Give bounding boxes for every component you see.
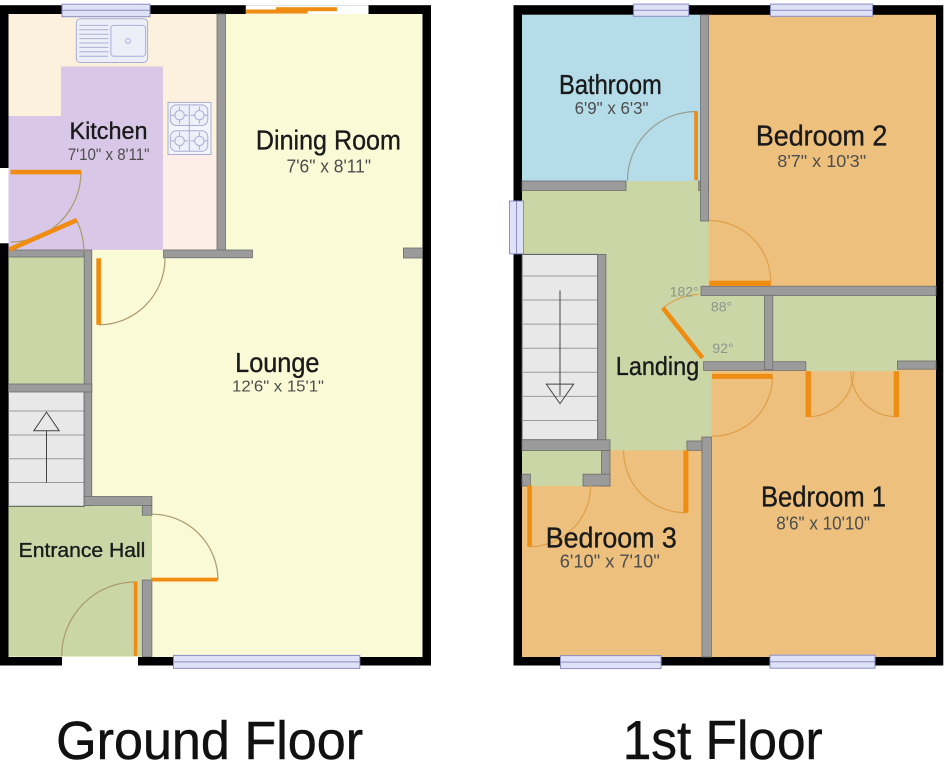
svg-text:Landing: Landing: [616, 351, 699, 381]
svg-text:12'6" x 15'1": 12'6" x 15'1": [232, 378, 324, 395]
svg-text:7'6" x 8'11": 7'6" x 8'11": [287, 155, 372, 176]
svg-text:Bathroom: Bathroom: [559, 69, 662, 100]
svg-text:88°: 88°: [711, 299, 732, 315]
svg-text:Kitchen: Kitchen: [70, 118, 148, 145]
svg-text:Dining Room: Dining Room: [256, 125, 401, 156]
svg-text:Lounge: Lounge: [235, 347, 319, 378]
svg-text:Entrance Hall: Entrance Hall: [19, 539, 146, 562]
svg-text:182°: 182°: [670, 284, 699, 300]
svg-text:Bedroom 2: Bedroom 2: [756, 119, 888, 151]
svg-text:Bedroom 1: Bedroom 1: [761, 481, 886, 513]
svg-text:Bedroom 3: Bedroom 3: [546, 521, 677, 553]
svg-text:92°: 92°: [712, 340, 733, 356]
svg-text:6'9" x 6'3": 6'9" x 6'3": [575, 98, 649, 118]
svg-text:Ground Floor: Ground Floor: [56, 711, 363, 768]
svg-text:6'10" x 7'10": 6'10" x 7'10": [560, 551, 660, 572]
svg-text:1st Floor: 1st Floor: [623, 710, 823, 768]
svg-text:7'10" x 8'11": 7'10" x 8'11": [68, 146, 150, 164]
svg-text:8'6" x 10'10": 8'6" x 10'10": [776, 514, 870, 534]
svg-text:8'7" x 10'3": 8'7" x 10'3": [777, 151, 866, 171]
